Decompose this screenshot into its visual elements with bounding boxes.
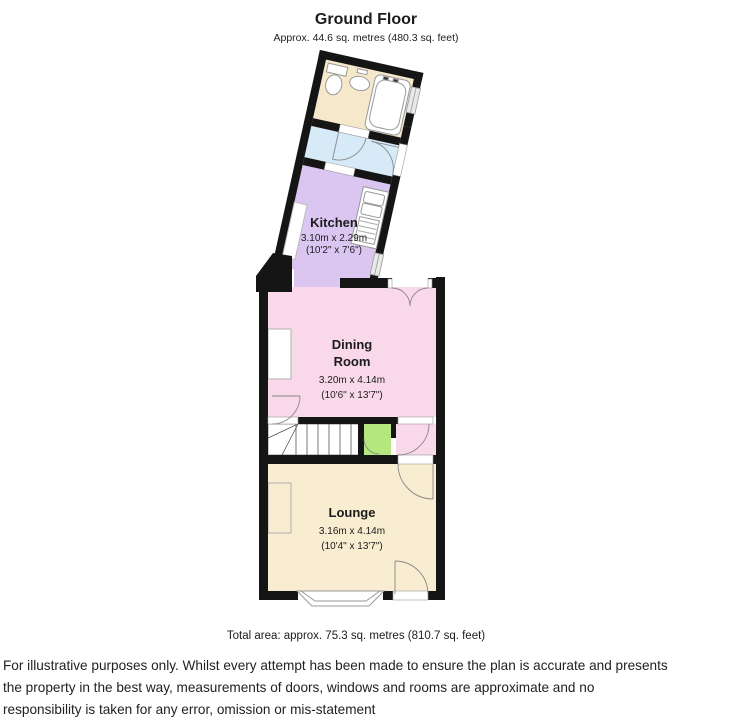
floor-plan: Ground Floor Approx. 44.6 sq. metres (48… (0, 0, 750, 655)
hallway-door-threshold (398, 417, 433, 424)
disclaimer-line-2: the property in the best way, measuremen… (3, 677, 749, 699)
french-door-jamb (388, 279, 392, 288)
lounge-door-threshold (398, 455, 433, 464)
dining-chimney-breast (268, 329, 291, 379)
plan-subtitle: Approx. 44.6 sq. metres (480.3 sq. feet) (273, 32, 458, 44)
french-door-jamb (428, 279, 432, 288)
disclaimer-line-3: responsibility is taken for any error, o… (3, 699, 749, 721)
dining-dim-metric: 3.20m x 4.14m (319, 375, 385, 386)
bay-window (297, 591, 384, 606)
plan-title: Ground Floor (315, 11, 417, 28)
lounge-dim-imperial: (10'4" x 13'7") (321, 541, 383, 552)
disclaimer-line-1: For illustrative purposes only. Whilst e… (3, 655, 749, 677)
wall-junction (256, 253, 292, 292)
front-door-threshold (393, 591, 428, 600)
hallway (396, 424, 436, 455)
dining-dim-imperial: (10'6" x 13'7") (321, 390, 383, 401)
stairs (268, 424, 360, 455)
dining-label-2: Room (334, 354, 371, 369)
lounge-chimney-breast (268, 483, 291, 533)
disclaimer: For illustrative purposes only. Whilst e… (3, 655, 749, 721)
total-area-label: Total area: approx. 75.3 sq. metres (810… (227, 630, 485, 642)
bath-tap (393, 79, 399, 83)
floorplan-page: Ground Floor Approx. 44.6 sq. metres (48… (0, 0, 750, 721)
lounge-dim-metric: 3.16m x 4.14m (319, 526, 385, 537)
under-stairs-cupboard (364, 424, 391, 455)
bath-tap (383, 76, 389, 80)
dining-label-1: Dining (332, 337, 372, 352)
lounge-label: Lounge (329, 505, 376, 520)
kitchen-label: Kitchen (310, 215, 358, 230)
kitchen-dim-metric: 3.10m x 2.29m (301, 233, 367, 244)
kitchen-dim-imperial: (10'2" x 7'6") (306, 245, 362, 256)
dining-door-threshold (268, 417, 298, 424)
